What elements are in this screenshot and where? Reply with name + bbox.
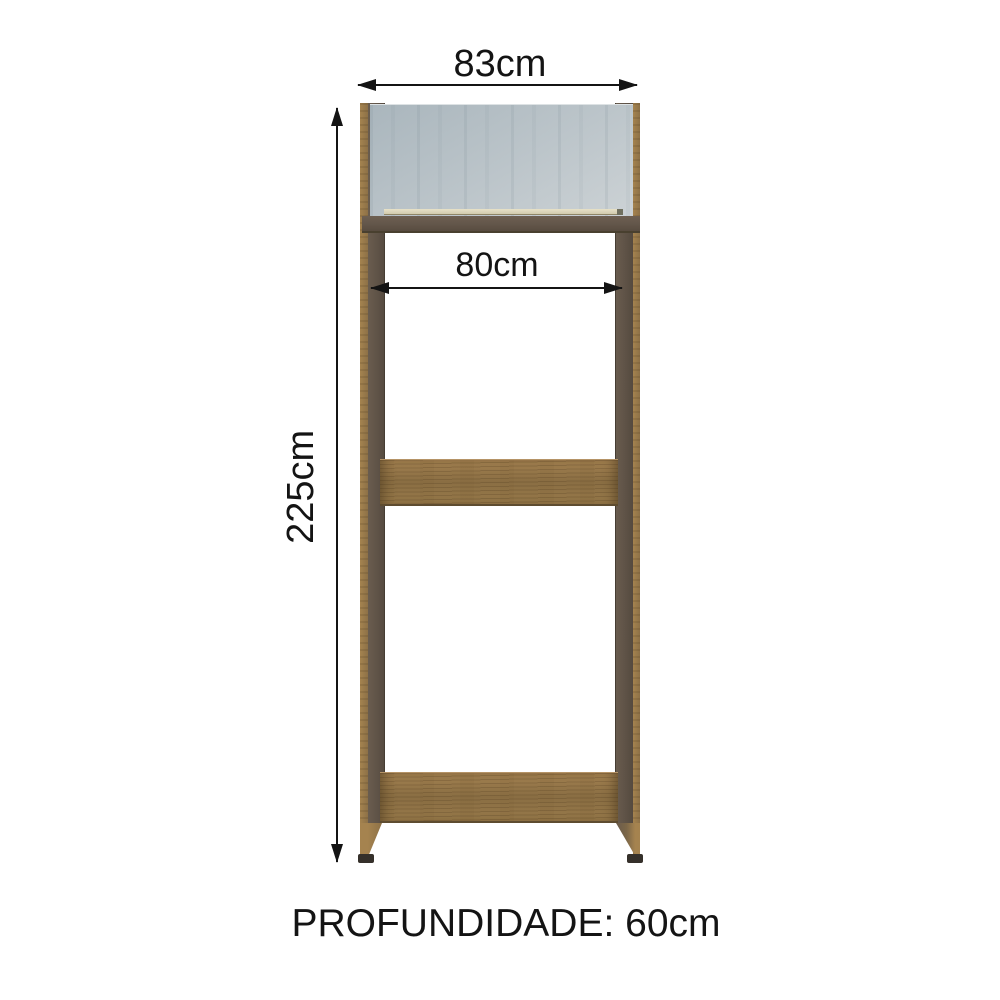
outer-width-arrow bbox=[358, 84, 637, 86]
left-leg bbox=[360, 823, 382, 856]
middle-shelf bbox=[380, 459, 618, 506]
glass-door-panel bbox=[370, 104, 633, 216]
bottom-shelf bbox=[380, 772, 618, 823]
left-foot bbox=[358, 854, 374, 863]
depth-label: PROFUNDIDADE: 60cm bbox=[256, 903, 756, 946]
outer-width-label: 83cm bbox=[400, 44, 600, 86]
right-leg bbox=[616, 823, 640, 856]
inner-width-arrow bbox=[371, 287, 622, 289]
height-label: 225cm bbox=[281, 387, 323, 587]
glass-door-trim bbox=[384, 209, 623, 215]
height-arrow bbox=[336, 108, 338, 862]
furniture-dimension-diagram: 83cm 225cm 80cm PROFUNDIDADE: 60cm bbox=[0, 0, 1000, 1000]
inner-width-label: 80cm bbox=[397, 247, 597, 284]
right-foot bbox=[627, 854, 643, 863]
top-frame-underside bbox=[362, 216, 640, 233]
